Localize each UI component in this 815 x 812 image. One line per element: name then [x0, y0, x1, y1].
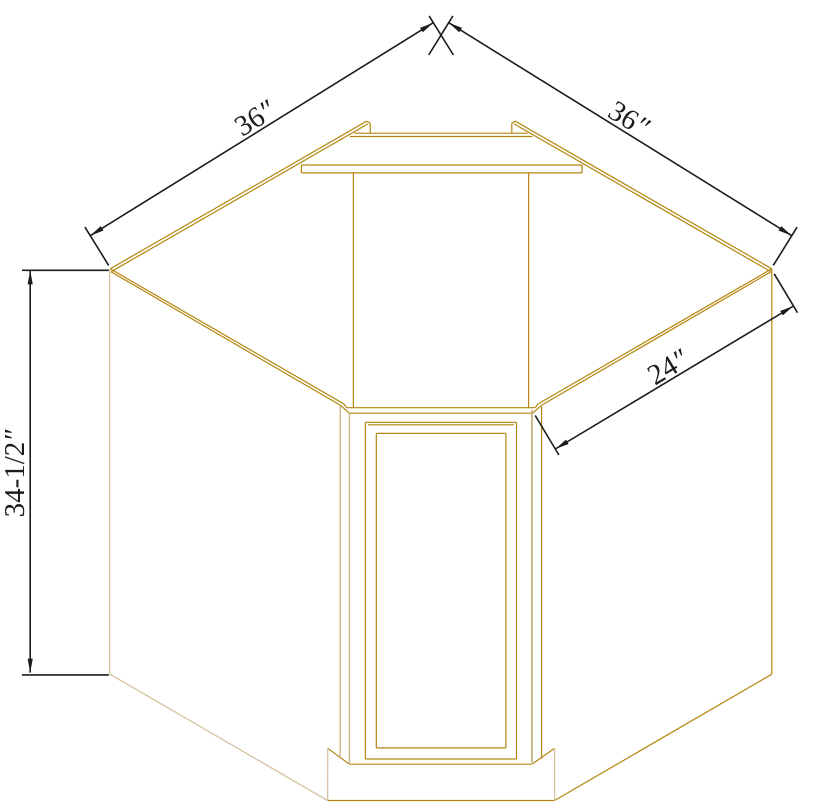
svg-text:34-1/2″: 34-1/2″	[0, 429, 31, 518]
